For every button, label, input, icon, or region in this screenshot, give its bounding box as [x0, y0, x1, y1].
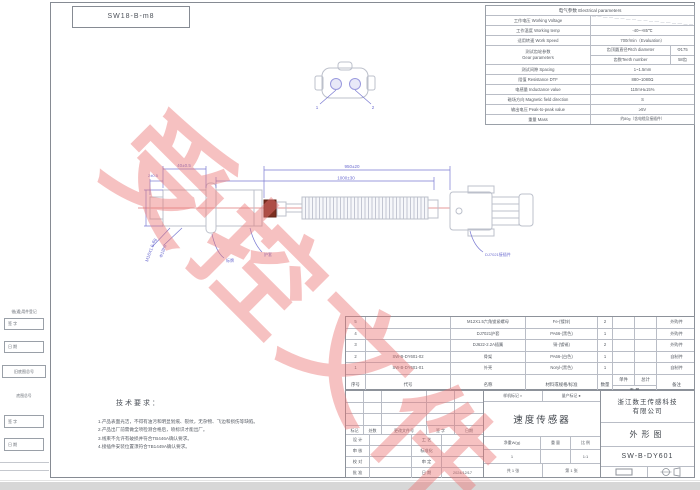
stage-mark-right: 量产标记 ● — [543, 391, 601, 401]
dim-cable2: 1000±30 — [337, 176, 355, 181]
net-weight-label: 净重W(g) — [484, 437, 541, 449]
rev-header: 更改文件号 — [382, 426, 427, 435]
rev-header: 日期 — [455, 426, 483, 435]
bom-row: 3 DJ622-2.2A插簧 铜-(镀锡) 2 外购件 — [346, 340, 694, 352]
paper-size-icon — [615, 468, 633, 476]
sheet-number: 第 1 张 — [543, 464, 600, 477]
notes-heading: 技术要求： — [116, 400, 338, 408]
dim-thread: M16X1.5-6g — [144, 237, 157, 262]
sheets-total: 共 1 张 — [484, 464, 543, 477]
bom-table: 5 M12X1.5六角锁紧螺母 Fe-(镀锌) 2 外购件 4 DJ7021护套… — [345, 316, 695, 390]
staff-row: 批 准 日 期 2024/12/17 — [346, 468, 483, 478]
callout-connector: DJ7021接插件 — [485, 251, 511, 257]
dim-tip: 2±0.5 — [148, 173, 159, 178]
net-weight-value: 1 — [484, 450, 541, 463]
release-date: 2024/12/17 — [442, 468, 483, 478]
weight-label: 重 量 — [541, 437, 571, 449]
note-item: 2.产品出厂前需做全项检测合格后，喷标识才能出厂。 — [98, 426, 338, 434]
company-name-line1: 浙江数王传感科技 — [601, 398, 694, 407]
technical-requirements: 技术要求： 1.产品表面光洁，不得有油污和明显划痕、裂纹，无杂物、飞边和损伤等缺… — [98, 400, 338, 452]
scale-value: 1:1 — [571, 450, 600, 463]
company-block: 浙江数王传感科技 有限公司 外形图 SW-B-DY601 — [601, 391, 694, 477]
dim-diameter: Φ18h6 — [158, 243, 168, 258]
rev-header: 签 字 — [427, 426, 455, 435]
pin1-label: 1 — [316, 105, 319, 110]
stage-mark-left: 样机标记 × — [484, 391, 543, 401]
title-and-scale: 样机标记 × 量产标记 ● 速度传感器 净重W(g) 重 量 比 例 1 1:1… — [484, 391, 601, 477]
revision-and-staff: 标记 处数 更改文件号 签 字 日期 设 计 工 艺 审 核 标准化 校 对 审… — [346, 391, 484, 477]
dim-body-length: 40±0.5 — [177, 163, 191, 168]
bom-row: 4 DJ7021护套 PA66-(黑色) 1 外购件 — [346, 329, 694, 341]
bom-row: 5 M12X1.5六角锁紧螺母 Fe-(镀锌) 2 外购件 — [346, 317, 694, 329]
drawing-sheet: 借(通)用件登记 签 字 日 期 旧底图总号 底图总号 签 字 日 期 SW18… — [0, 0, 700, 490]
rev-header: 处数 — [364, 426, 382, 435]
corrugated-sleeve — [302, 197, 428, 219]
drawing-title: 速度传感器 — [484, 402, 600, 437]
note-item: 1.产品表面光洁，不得有油污和明显划痕、裂纹，无杂物、飞边和损伤等缺陷。 — [98, 418, 338, 426]
staff-row: 审 核 标准化 — [346, 446, 483, 457]
rev-header: 标记 — [346, 426, 364, 435]
callout-label: 标牌 — [226, 257, 234, 263]
connector-face-view — [315, 62, 375, 104]
note-item: 4.接插件安装位置须符合TB1449A确认要求。 — [98, 443, 338, 451]
sensor-side-view — [150, 183, 533, 236]
projection-symbol-icon — [660, 467, 682, 477]
note-item: 3.线束不允许有破损并符合TB446A确认要求。 — [98, 435, 338, 443]
staff-row: 设 计 工 艺 — [346, 435, 483, 446]
company-name-line2: 有限公司 — [601, 407, 694, 416]
callout-label: 护套 — [264, 251, 272, 257]
bom-row: 2 SW-B-DY601-02 骨架 PA66-(白色) 1 自制件 — [346, 352, 694, 364]
bom-rows: 5 M12X1.5六角锁紧螺母 Fe-(镀锌) 2 外购件 4 DJ7021护套… — [346, 317, 694, 375]
pin2-label: 2 — [372, 105, 375, 110]
dim-cable1: 950±20 — [345, 164, 360, 169]
title-block: 标记 处数 更改文件号 签 字 日期 设 计 工 艺 审 核 标准化 校 对 审… — [345, 390, 695, 478]
bom-row: 1 SW-B-DY601-01 外壳 Noryl-(黑色) 1 自制件 — [346, 363, 694, 375]
doc-type: 外形图 — [601, 423, 694, 447]
seal-block — [264, 200, 276, 217]
page-edge — [0, 480, 700, 481]
drawing-number: SW-B-DY601 — [601, 447, 694, 467]
scale-label: 比 例 — [571, 437, 600, 449]
staff-row: 校 对 审 定 — [346, 457, 483, 468]
page-edge-shadow — [0, 482, 700, 490]
